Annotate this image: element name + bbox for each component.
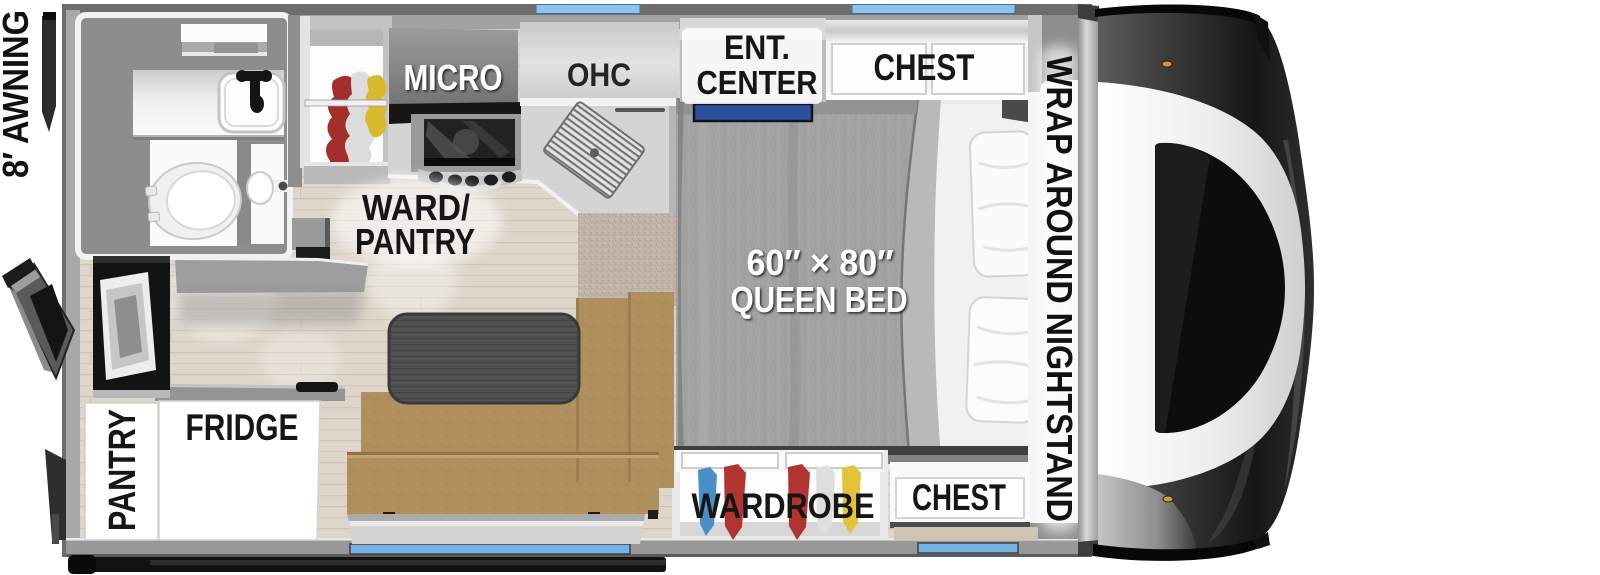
svg-text:WARDROBE: WARDROBE xyxy=(692,487,875,526)
svg-text:WRAP AROUND NIGHTSTAND: WRAP AROUND NIGHTSTAND xyxy=(1039,56,1080,522)
svg-text:8′ AWNING: 8′ AWNING xyxy=(0,10,36,178)
svg-text:MICRO: MICRO xyxy=(404,57,503,98)
svg-text:PANTRY: PANTRY xyxy=(355,221,475,262)
svg-text:PANTRY: PANTRY xyxy=(102,409,144,531)
svg-text:60″ × 80″: 60″ × 80″ xyxy=(747,242,894,283)
svg-text:CHEST: CHEST xyxy=(912,477,1006,518)
svg-text:FRIDGE: FRIDGE xyxy=(186,407,299,448)
svg-text:CENTER: CENTER xyxy=(697,64,818,101)
svg-text:CHEST: CHEST xyxy=(874,47,975,88)
svg-text:OHC: OHC xyxy=(567,57,631,93)
svg-text:QUEEN BED: QUEEN BED xyxy=(731,279,908,320)
svg-text:ENT.: ENT. xyxy=(724,29,790,67)
